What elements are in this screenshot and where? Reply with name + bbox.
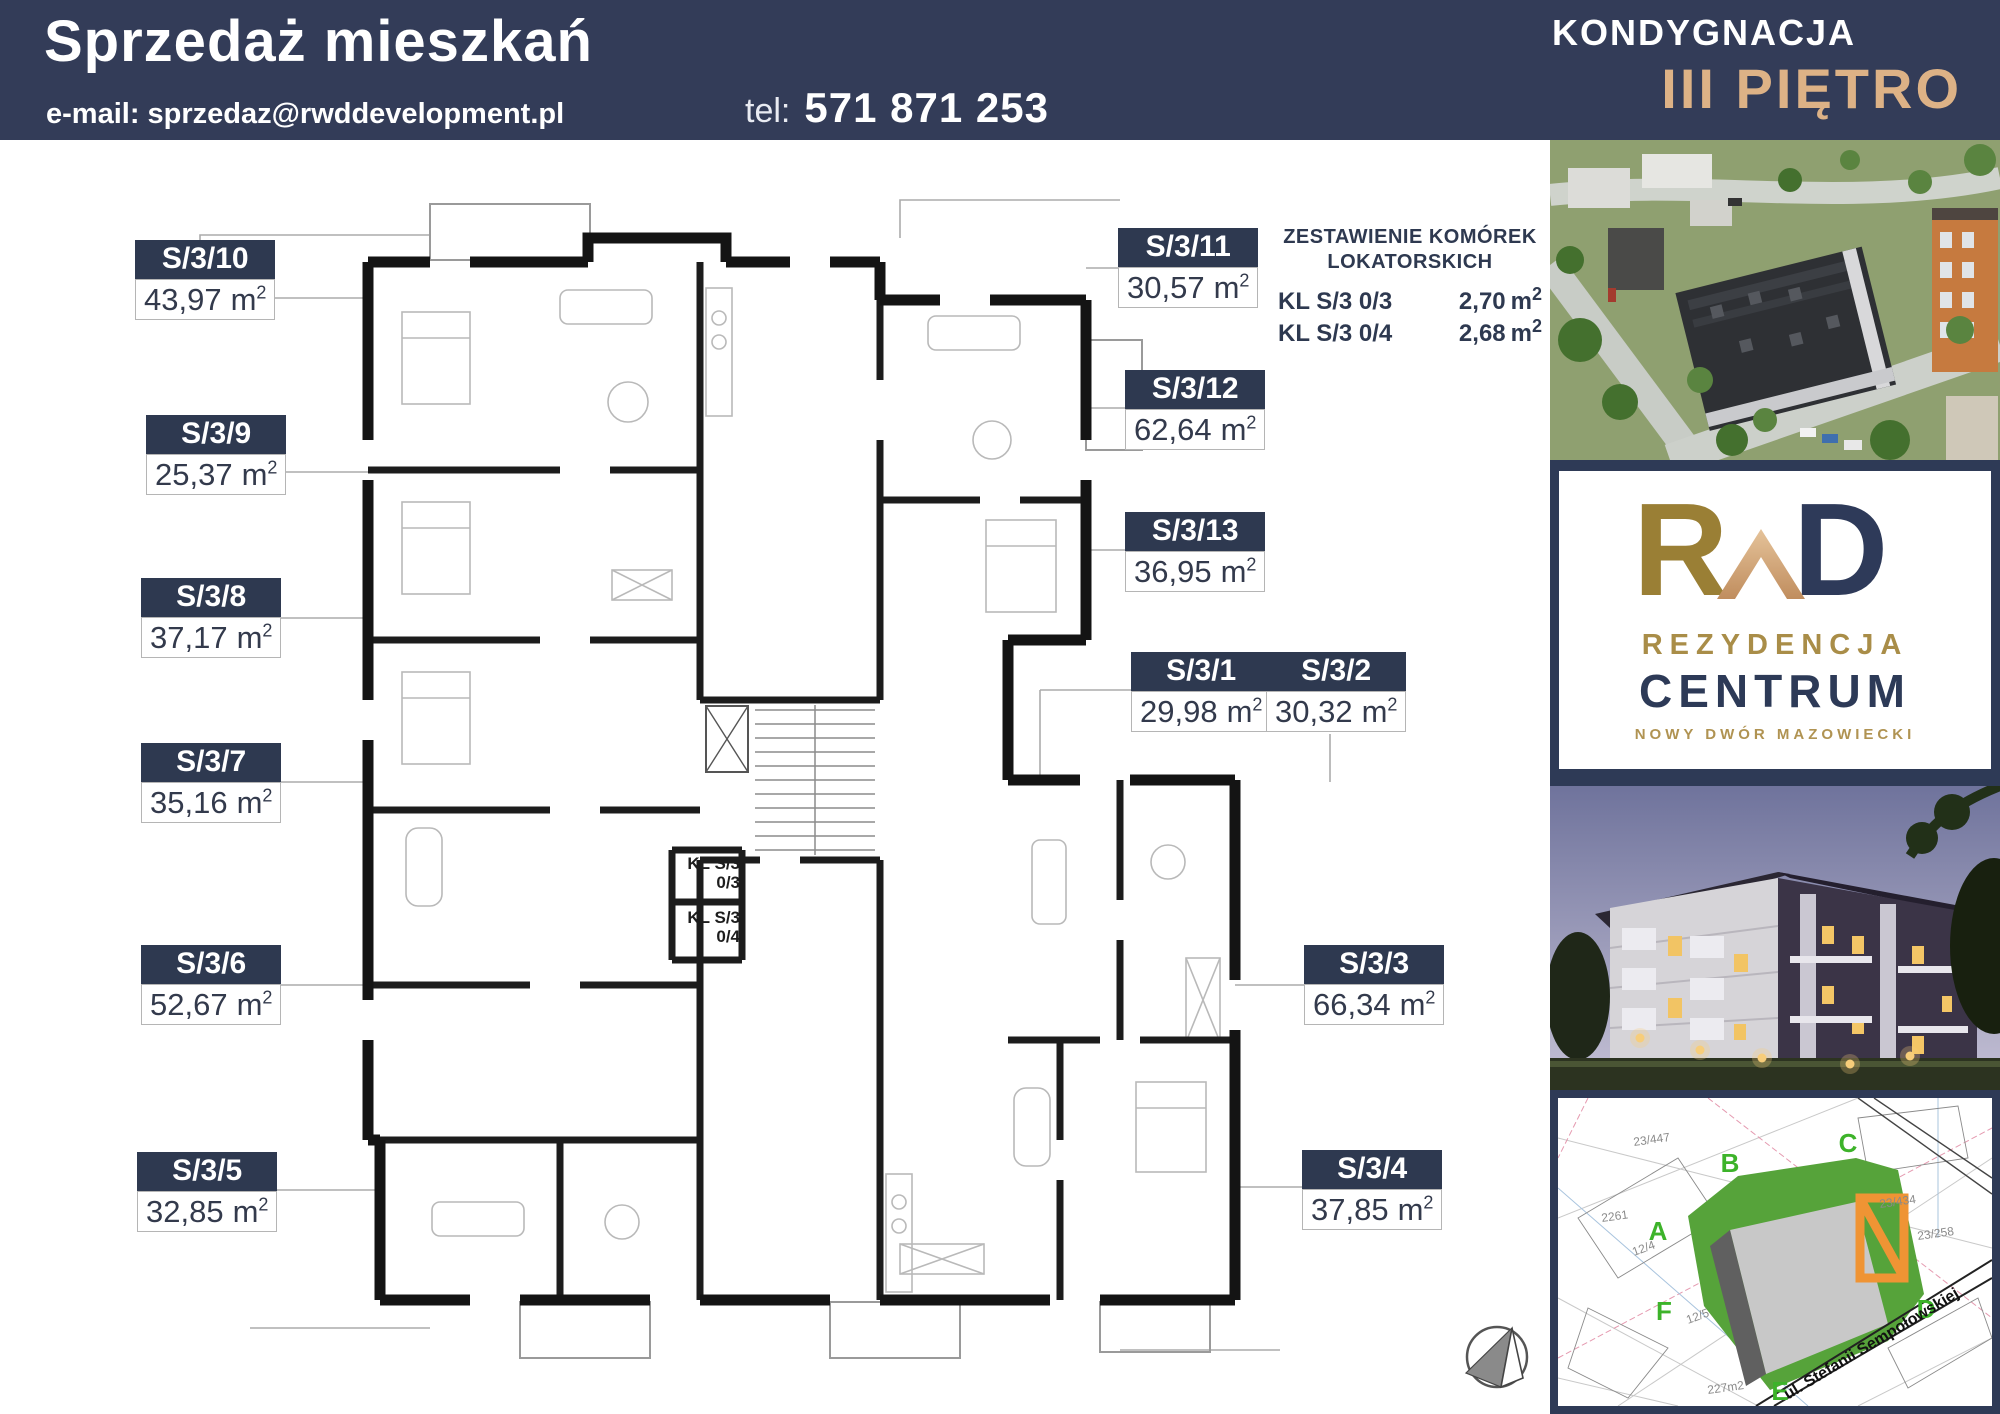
apartment-area: 66,34m2 — [1304, 984, 1444, 1025]
apartment-label: S/3/2 30,32m2 — [1266, 652, 1406, 732]
apartment-id: S/3/3 — [1304, 945, 1444, 984]
floor-label: III PIĘTRO — [1661, 56, 1962, 121]
apartment-id: S/3/12 — [1125, 370, 1265, 409]
page-title: Sprzedaż mieszkań — [44, 8, 593, 75]
storage-summary: ZESTAWIENIE KOMÓREK LOKATORSKICH KL S/3 … — [1278, 225, 1542, 349]
svg-text:12/4: 12/4 — [1630, 1238, 1657, 1259]
apartment-id: S/3/8 — [141, 578, 281, 617]
apartment-id: S/3/6 — [141, 945, 281, 984]
rwd-logo: R D — [1625, 485, 1925, 617]
storage-row: KL S/3 0/4 2,68m2 — [1278, 317, 1542, 349]
logo-letter-r: R — [1633, 485, 1728, 617]
svg-text:12/5: 12/5 — [1684, 1306, 1711, 1327]
logo-mountain-icon — [1717, 529, 1805, 599]
site-map-svg: A B C D E F 2261 23/447 23/434 23/258 22… — [1558, 1098, 1992, 1406]
page: Sprzedaż mieszkań e-mail: sprzedaz@rwdde… — [0, 0, 2000, 1414]
apartment-label: S/3/7 35,16m2 — [141, 743, 281, 823]
storage-rows: KL S/3 0/3 2,70m2 KL S/3 0/4 2,68m2 — [1278, 285, 1542, 349]
logo-line-rezydencja: REZYDENCJA — [1642, 629, 1909, 662]
logo-line-city: NOWY DWÓR MAZOWIECKI — [1635, 726, 1916, 743]
logo-letter-d: D — [1793, 485, 1888, 617]
apartment-label: S/3/9 25,37m2 — [146, 415, 286, 495]
svg-text:B: B — [1721, 1148, 1740, 1178]
apartment-label: S/3/8 37,17m2 — [141, 578, 281, 658]
building-render-photo — [1550, 786, 2000, 1092]
apartment-label: S/3/13 36,95m2 — [1125, 512, 1265, 592]
apartment-label: S/3/12 62,64m2 — [1125, 370, 1265, 450]
apartment-label: S/3/1 29,98m2 — [1131, 652, 1271, 732]
apartment-area: 37,85m2 — [1302, 1189, 1442, 1230]
apartment-id: S/3/4 — [1302, 1150, 1442, 1189]
apartment-area: 25,37m2 — [146, 454, 286, 495]
apartment-id: S/3/1 — [1131, 652, 1271, 691]
apartment-id: S/3/7 — [141, 743, 281, 782]
email-line: e-mail: sprzedaz@rwddevelopment.pl — [46, 98, 564, 131]
apartment-label: S/3/4 37,85m2 — [1302, 1150, 1442, 1230]
apartment-area: 52,67m2 — [141, 984, 281, 1025]
apartment-area: 62,64m2 — [1125, 409, 1265, 450]
apartment-area: 35,16m2 — [141, 782, 281, 823]
apartment-label: S/3/10 43,97m2 — [135, 240, 275, 320]
sidebar: R D REZYDENCJA CENTRUM NOWY DWÓR MAZOWIE… — [1550, 140, 2000, 1414]
apartment-label: S/3/11 30,57m2 — [1118, 228, 1258, 308]
apartment-area: 30,32m2 — [1266, 691, 1406, 732]
apartment-id: S/3/9 — [146, 415, 286, 454]
apartment-label: S/3/3 66,34m2 — [1304, 945, 1444, 1025]
apartment-label: S/3/6 52,67m2 — [141, 945, 281, 1025]
header: Sprzedaż mieszkań e-mail: sprzedaz@rwdde… — [0, 0, 2000, 140]
logo-line-centrum: CENTRUM — [1639, 664, 1911, 718]
apartment-id: S/3/2 — [1266, 652, 1406, 691]
apartment-id: S/3/5 — [137, 1152, 277, 1191]
apartment-area: 32,85m2 — [137, 1191, 277, 1232]
kl-room-label: KL S/30/3 — [676, 854, 740, 892]
svg-text:F: F — [1656, 1296, 1672, 1326]
kondygnacja-label: KONDYGNACJA — [1552, 12, 1856, 54]
svg-text:2261: 2261 — [1600, 1207, 1629, 1225]
stair-core — [706, 705, 875, 855]
storage-row: KL S/3 0/3 2,70m2 — [1278, 285, 1542, 317]
balconies — [430, 204, 1210, 1358]
logo-block: R D REZYDENCJA CENTRUM NOWY DWÓR MAZOWIE… — [1550, 462, 2000, 778]
apartment-area: 36,95m2 — [1125, 551, 1265, 592]
svg-text:23/258: 23/258 — [1916, 1224, 1955, 1243]
north-arrow-icon — [1466, 1327, 1527, 1387]
aerial-photo — [1550, 140, 2000, 460]
inner-walls — [368, 262, 1235, 1300]
apartment-area: 29,98m2 — [1131, 691, 1271, 732]
phone-label: tel: — [745, 92, 790, 131]
svg-text:23/447: 23/447 — [1632, 1130, 1671, 1149]
apartment-area: 43,97m2 — [135, 279, 275, 320]
apartment-id: S/3/11 — [1118, 228, 1258, 267]
svg-text:C: C — [1839, 1128, 1858, 1158]
apartment-area: 37,17m2 — [141, 617, 281, 658]
apartment-label: S/3/5 32,85m2 — [137, 1152, 277, 1232]
phone-number: 571 871 253 — [804, 84, 1049, 132]
storage-title: ZESTAWIENIE KOMÓREK LOKATORSKICH — [1278, 225, 1542, 275]
floor-plan-area: S/3/10 43,97m2 S/3/9 25,37m2 S/3/8 37,17… — [0, 140, 1550, 1414]
apartment-id: S/3/13 — [1125, 512, 1265, 551]
phone-block: tel: 571 871 253 — [745, 84, 1049, 132]
kl-room-label: KL S/30/4 — [676, 908, 740, 946]
apartment-area: 30,57m2 — [1118, 267, 1258, 308]
apartment-id: S/3/10 — [135, 240, 275, 279]
site-map-block: A B C D E F 2261 23/447 23/434 23/258 22… — [1550, 1090, 2000, 1414]
